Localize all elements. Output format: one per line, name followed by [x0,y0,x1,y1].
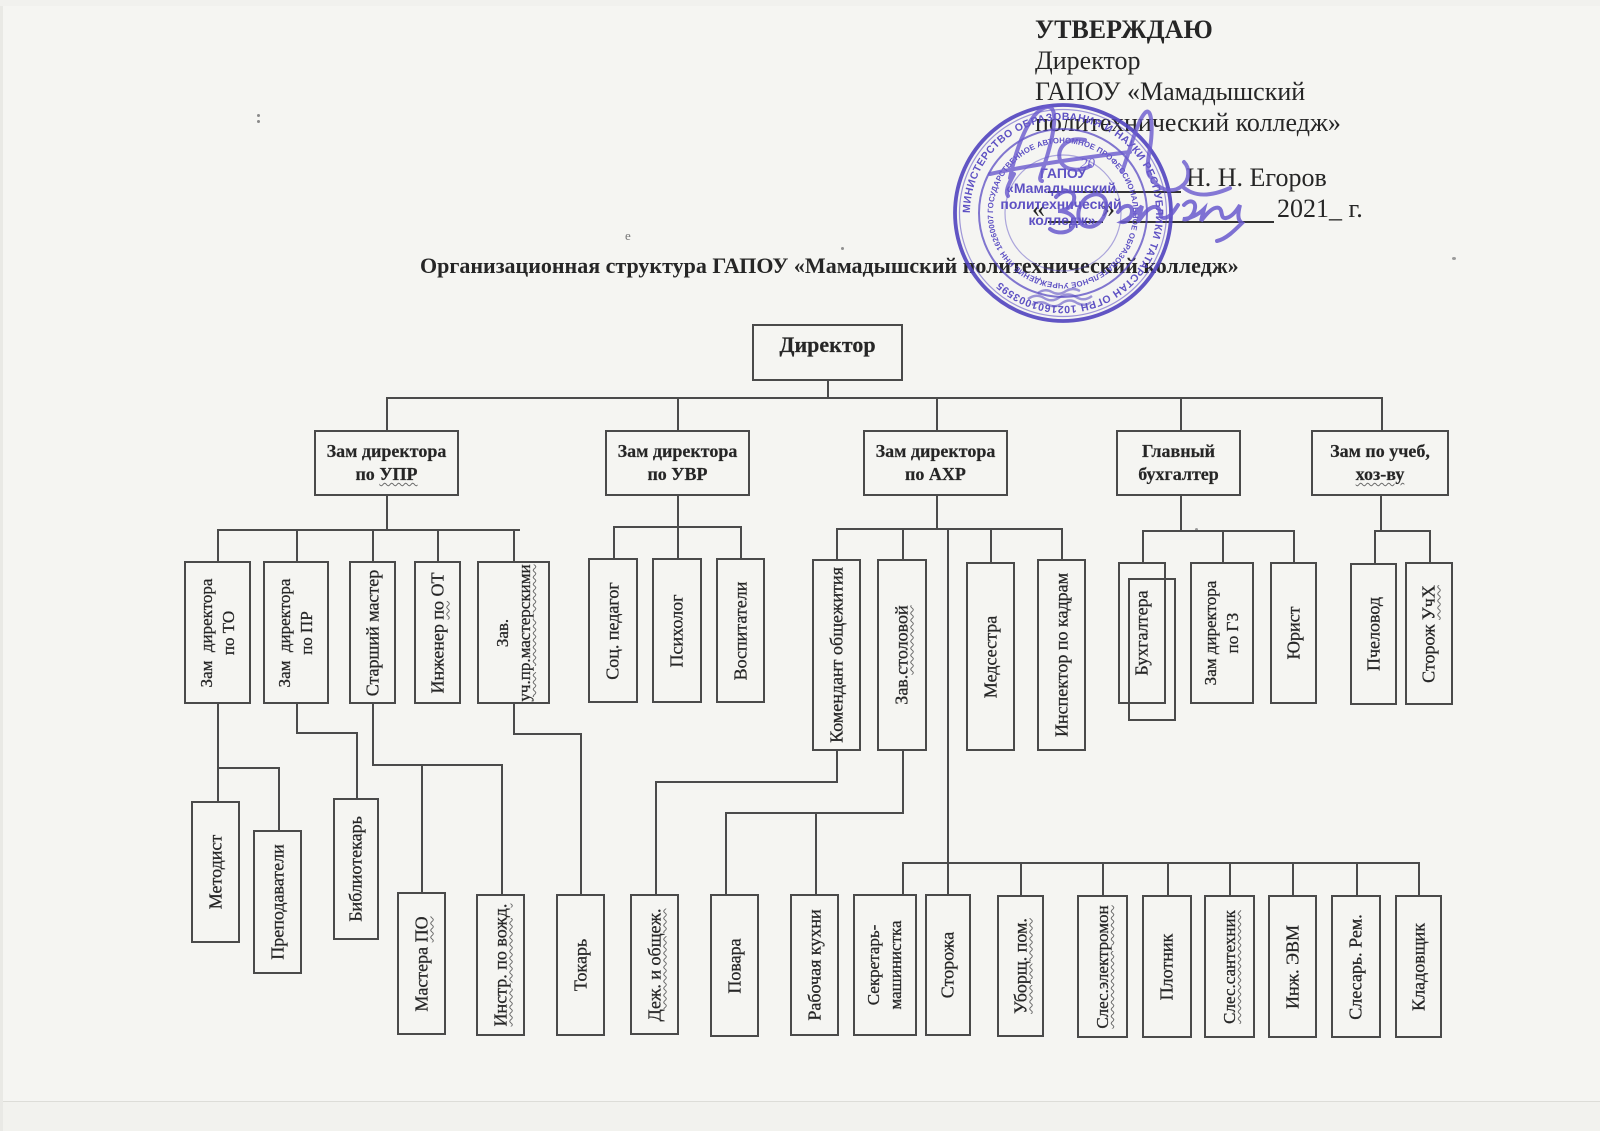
svg-text:20: 20 [1080,156,1096,172]
